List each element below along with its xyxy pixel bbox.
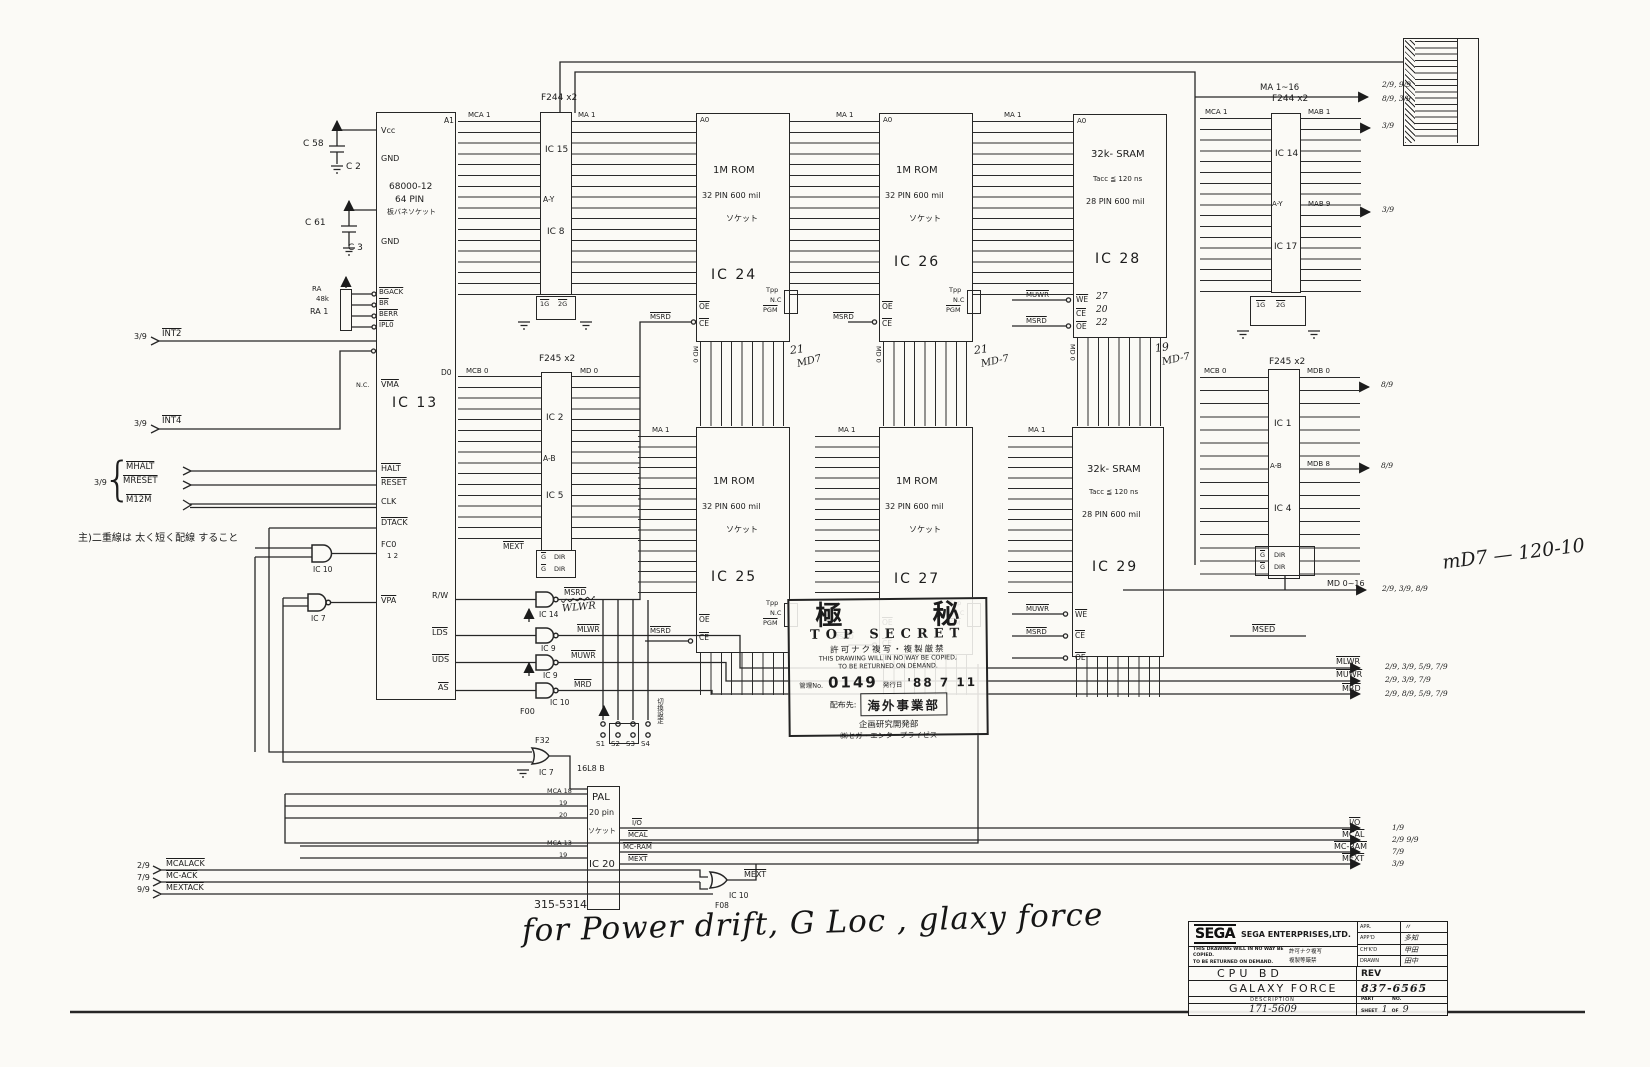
stamp-kanji-2: 秘 bbox=[932, 601, 959, 628]
connector-hatch bbox=[1405, 40, 1415, 143]
mrd-refs: 2/9, 8/9, 5/9, 7/9 bbox=[1385, 690, 1448, 698]
board-title: CPU BD bbox=[1189, 967, 1357, 980]
company-name: SEGA ENTERPRISES,LTD. bbox=[1241, 930, 1351, 939]
ic29-type: 32k- SRAM bbox=[1087, 465, 1141, 475]
signal-mcram: MC-RAM bbox=[1334, 843, 1367, 851]
gate-family-f00: F00 bbox=[520, 708, 535, 716]
signal-mrd: MRD bbox=[1342, 685, 1361, 693]
cpu-vcc1: Vcc bbox=[381, 127, 395, 135]
pgm-box-ic26 bbox=[967, 290, 981, 314]
appr-sign-1: 多知 bbox=[1401, 933, 1447, 943]
gate-ic9b: IC 9 bbox=[543, 672, 558, 680]
pal-in4: MCA 13 bbox=[547, 840, 572, 847]
signal-int2: INT2 bbox=[162, 330, 181, 339]
f245r-mode: A-B bbox=[1270, 463, 1282, 470]
pal-l3: ソケット bbox=[588, 828, 616, 835]
mab9-ref: 3/9 bbox=[1382, 206, 1394, 214]
description-value: 171-5609 bbox=[1189, 1004, 1357, 1015]
cpu-a1: A1 bbox=[444, 117, 454, 125]
f245l-g: G bbox=[541, 554, 546, 561]
stamp-top-secret: TOP SECRET bbox=[790, 626, 986, 643]
ic26-tpp: Tpp bbox=[949, 287, 961, 294]
bus-ma-ic29 bbox=[1008, 436, 1072, 595]
wiring-note-jp: 主)二重線は 太く短く配線 すること bbox=[78, 534, 238, 544]
int4-pageref: 3/9 bbox=[134, 420, 147, 428]
pal-in2: 19 bbox=[559, 800, 567, 807]
f245r-hdr-in: MCB 0 bbox=[1204, 368, 1226, 375]
ic25-nc: N.C bbox=[770, 610, 781, 617]
stamp-date-label: 発行日 bbox=[883, 679, 903, 689]
f244r-2g: 2G bbox=[1276, 302, 1285, 309]
ic26-type: 1M ROM bbox=[896, 166, 938, 176]
cpu-vma: VMA bbox=[381, 381, 399, 389]
ic26-nc: N.C bbox=[953, 297, 964, 304]
ic29-tacc: Tacc ≦ 120 ns bbox=[1089, 489, 1138, 496]
ic25-socket: ソケット bbox=[726, 526, 758, 534]
jumper-note: 切換設定 bbox=[656, 698, 663, 724]
ra-name: RA bbox=[312, 286, 321, 293]
ic29-oe: OE bbox=[1075, 654, 1086, 662]
and-gate-fc0 bbox=[312, 545, 332, 562]
ic26-name: IC 26 bbox=[894, 255, 940, 269]
pal-l1: PAL bbox=[592, 793, 610, 803]
f244r-hdr-out2: MAB 9 bbox=[1308, 201, 1330, 208]
cpu-rw: R/W bbox=[432, 592, 448, 600]
gate-out-muwr: MUWR bbox=[571, 652, 596, 660]
cap-label-c2: C 2 bbox=[346, 163, 361, 172]
product-name: GALAXY FORCE bbox=[1189, 981, 1357, 995]
f245l-ic-a: IC 2 bbox=[546, 414, 564, 423]
md0-vlabel-3: MD 0 bbox=[1069, 344, 1076, 361]
ic25-ce: CE bbox=[699, 634, 709, 642]
ic27-package: 32 PIN 600 mil bbox=[885, 503, 943, 511]
ic28-package: 28 PIN 600 mil bbox=[1086, 198, 1144, 206]
appr-label-3: DRAWN bbox=[1358, 956, 1401, 966]
ic25-msrd: MSRD bbox=[650, 628, 671, 635]
f245l-title: F245 x2 bbox=[539, 355, 575, 364]
signal-muwr: MUWR bbox=[1336, 671, 1362, 679]
f245r-hdr-out2: MDB 8 bbox=[1307, 461, 1330, 468]
ic24-socket: ソケット bbox=[726, 215, 758, 223]
f245r-dirb: DIR bbox=[1274, 564, 1285, 571]
sheet-total: 9 bbox=[1403, 1004, 1409, 1015]
ra-ref: RA 1 bbox=[310, 308, 328, 316]
f244l-ic-b: IC 8 bbox=[547, 228, 565, 237]
bus-ma-ic27 bbox=[815, 436, 879, 595]
gate-out-mlwr: MLWR bbox=[577, 626, 600, 634]
hand-21-b: 21 bbox=[973, 343, 988, 356]
mext-ref: 3/9 bbox=[1392, 860, 1404, 868]
pal-in5: 19 bbox=[559, 852, 567, 859]
f244l-1g: 1G bbox=[540, 301, 549, 308]
jumper-s2: S2 bbox=[611, 741, 620, 748]
cpu-pins: 64 PIN bbox=[395, 196, 424, 205]
signal-mextack: MEXTACK bbox=[166, 884, 204, 892]
gate-mext-ic: IC 10 bbox=[729, 892, 748, 900]
rev-label: REV bbox=[1357, 967, 1447, 980]
signal-msed: MSED bbox=[1252, 626, 1275, 634]
int2-pageref: 3/9 bbox=[134, 333, 147, 341]
jumper-s4: S4 bbox=[641, 741, 650, 748]
pal-in1: MCA 18 bbox=[547, 788, 572, 795]
ic29-name: IC 29 bbox=[1092, 560, 1138, 574]
appr-sign-3: 田中 bbox=[1401, 956, 1447, 966]
ic25-tpp: Tpp bbox=[766, 600, 778, 607]
signal-mcal: MCAL bbox=[1342, 831, 1364, 839]
appr-label-2: CH'K'D bbox=[1358, 945, 1401, 955]
stamp-no-label: 管理No. bbox=[799, 679, 823, 689]
stamp-dist-value: 海外事業部 bbox=[860, 692, 947, 716]
bus-cpu-to-f245 bbox=[458, 376, 541, 549]
part-label: PART bbox=[1361, 997, 1374, 1002]
md0-vlabel-2: MD 0 bbox=[875, 346, 882, 363]
f245l-hdr-in: MCB 0 bbox=[466, 368, 488, 375]
f245l-hdr-out: MD 0 bbox=[580, 368, 598, 375]
mcal-refs: 2/9 9/9 bbox=[1392, 836, 1419, 844]
mdb8-ref: 8/9 bbox=[1381, 462, 1393, 470]
f245r-hdr-out: MDB 0 bbox=[1307, 368, 1330, 375]
ic28-ce: CE bbox=[1076, 310, 1086, 318]
f244r-1g: 1G bbox=[1256, 302, 1265, 309]
ic24-type: 1M ROM bbox=[713, 166, 755, 176]
pal-out-mcram: MC-RAM bbox=[623, 844, 652, 851]
ic28-type: 32k- SRAM bbox=[1091, 150, 1145, 160]
f244l-mode: A-Y bbox=[543, 196, 554, 204]
signal-mlwr: MLWR bbox=[1336, 658, 1360, 666]
ic26-package: 32 PIN 600 mil bbox=[885, 192, 943, 200]
cpu-bgack: BGACK bbox=[379, 289, 403, 296]
ic27-socket: ソケット bbox=[909, 526, 941, 534]
cpu-halt: HALT bbox=[381, 465, 401, 473]
f244r-title: F244 x2 bbox=[1272, 95, 1308, 104]
io-ref: 1/9 bbox=[1392, 824, 1404, 832]
ic29-we: WE bbox=[1075, 611, 1087, 619]
schematic-sheet: C 58 C 2 C 61 C 3 RA 48k RA 1 3/9 INT2 3… bbox=[0, 0, 1650, 1067]
ic25-package: 32 PIN 600 mil bbox=[702, 503, 760, 511]
bus-ma-ic25 bbox=[638, 436, 696, 595]
ma-hdr-3: MA 1 bbox=[1004, 112, 1022, 119]
ack1-pageref: 2/9 bbox=[137, 862, 150, 870]
pgm-box-ic24 bbox=[784, 290, 798, 314]
appr-label-1: APP'D bbox=[1358, 933, 1401, 943]
ic26-pgm: PGM bbox=[946, 307, 961, 314]
f244r-ic-a: IC 14 bbox=[1275, 150, 1298, 159]
ic25-oe: OE bbox=[699, 616, 710, 624]
cpu-as: AS bbox=[438, 684, 449, 692]
nand-gate-msrd bbox=[536, 592, 558, 607]
edge-connector bbox=[1403, 38, 1479, 146]
f245r-ic-b: IC 4 bbox=[1274, 505, 1292, 514]
nand-gate-vpa bbox=[308, 594, 331, 611]
gate-fc-ic: IC 10 bbox=[313, 566, 332, 574]
ic28-tacc: Tacc ≦ 120 ns bbox=[1093, 176, 1142, 183]
ic25-pgm: PGM bbox=[763, 620, 778, 627]
f245l-ic-b: IC 5 bbox=[546, 492, 564, 501]
pal-name: IC 20 bbox=[589, 860, 615, 870]
cpu-gnd1: GND bbox=[381, 155, 399, 163]
f245l-dir: DIR bbox=[554, 554, 565, 561]
approval-grid: APR. 〃 APP'D 多知 CH'K'D 甲田 DRAWN 田中 bbox=[1358, 922, 1447, 966]
ic28-oe: OE bbox=[1076, 323, 1087, 331]
stamp-date: '88 7 11 bbox=[907, 675, 977, 690]
signal-io: I/O bbox=[1349, 819, 1360, 827]
ic24-ce: CE bbox=[699, 320, 709, 328]
bus-ma-2 bbox=[790, 121, 879, 295]
ra-value: 48k bbox=[316, 296, 329, 303]
md0-vlabel-1: MD 0 bbox=[692, 346, 699, 363]
pal-out-mext: MEXT bbox=[628, 856, 647, 863]
gate-f32-ic: IC 7 bbox=[539, 769, 554, 777]
ic24-name: IC 24 bbox=[711, 268, 757, 282]
stamp-kanji-1: 極 bbox=[815, 602, 842, 629]
f244r-mode: A-Y bbox=[1272, 201, 1283, 208]
connector-divider bbox=[1457, 39, 1458, 143]
f244l-hdr-out: MA 1 bbox=[578, 112, 596, 119]
chip-ic20-pal bbox=[587, 786, 620, 910]
f245r-title: F245 x2 bbox=[1269, 358, 1305, 367]
sheet-label: SHEET bbox=[1361, 1009, 1378, 1014]
ack3-pageref: 9/9 bbox=[137, 886, 150, 894]
ic28-msrd: MSRD bbox=[1026, 318, 1047, 325]
description-label: DESCRIPTION bbox=[1189, 997, 1357, 1003]
ic29-muwr: MUWR bbox=[1026, 606, 1049, 613]
appr-label-0: APR. bbox=[1358, 922, 1401, 932]
ic24-nc: N.C bbox=[770, 297, 781, 304]
f244l-title: F244 x2 bbox=[541, 94, 577, 103]
pal-l2: 20 pin bbox=[589, 809, 614, 817]
jumper-s1: S1 bbox=[596, 741, 605, 748]
hand-19-c: 19 bbox=[1154, 341, 1169, 354]
ic28-hand-we: 27 bbox=[1096, 293, 1107, 302]
signal-m12m: M12M bbox=[126, 496, 151, 505]
bus-cpu-to-f244 bbox=[458, 121, 540, 295]
pal-part-number: 315-5314 bbox=[534, 899, 587, 910]
ic24-tpp: Tpp bbox=[766, 287, 778, 294]
f244r-hdr-out: MAB 1 bbox=[1308, 109, 1330, 116]
f245r-ic-a: IC 1 bbox=[1274, 420, 1292, 429]
tb-disclaimer-2: TO BE RETURNED ON DEMAND. bbox=[1193, 960, 1289, 966]
nand-gate-muwr bbox=[536, 655, 558, 670]
board-number: 837-6565 bbox=[1357, 981, 1447, 995]
cpu-lds: LDS bbox=[432, 629, 448, 637]
ic26-a0: A0 bbox=[883, 117, 892, 124]
gate-family-f32: F32 bbox=[535, 737, 550, 745]
f244r-hdr-in: MCA 1 bbox=[1205, 109, 1227, 116]
bus-ma-3 bbox=[973, 121, 1073, 295]
ic24-a0: A0 bbox=[700, 117, 709, 124]
ack2-pageref: 7/9 bbox=[137, 874, 150, 882]
nand-gate-mlwr bbox=[536, 628, 558, 643]
connector-pins bbox=[1415, 41, 1457, 142]
ic26-oe: OE bbox=[882, 303, 893, 311]
bus-d-ic29 bbox=[1076, 657, 1166, 697]
ma-refs-2: 8/9, 3/9 bbox=[1382, 95, 1411, 103]
resistor-array-body bbox=[340, 289, 352, 331]
jumper-s3: S3 bbox=[626, 741, 635, 748]
signal-md-bus: MD 0~16 bbox=[1327, 580, 1365, 588]
or-gate-mext bbox=[710, 872, 727, 888]
top-secret-stamp: 極 秘 TOP SECRET 許可ナク複写・複製厳禁 THIS DRAWING … bbox=[787, 597, 988, 737]
bus-d-ic28 bbox=[1077, 338, 1167, 426]
signal-ma-bus: MA 1~16 bbox=[1260, 84, 1299, 93]
gate-ic14: IC 14 bbox=[539, 611, 558, 619]
gate-out-mrd: MRD bbox=[574, 681, 591, 689]
cpu-reset: RESET bbox=[381, 479, 407, 487]
pal-out-mcal: MCAL bbox=[628, 832, 648, 839]
pal-out-io: I/O bbox=[632, 820, 642, 827]
bus-d-ic25 bbox=[700, 653, 790, 695]
cpu-d0: D0 bbox=[441, 369, 452, 377]
ic25-name: IC 25 bbox=[711, 570, 757, 584]
chip-ic29-sram bbox=[1072, 427, 1164, 657]
ic24-pgm: PGM bbox=[763, 307, 778, 314]
signal-mreset: MRESET bbox=[123, 477, 158, 486]
gate-ic9a: IC 9 bbox=[541, 645, 556, 653]
capacitor-symbols bbox=[329, 130, 345, 173]
tb-disclaimer-jp1: 許可ナク複写 bbox=[1289, 948, 1322, 956]
chip-ic28-sram bbox=[1073, 114, 1167, 338]
cpu-dtack: DTACK bbox=[381, 519, 408, 527]
appr-sign-2: 甲田 bbox=[1401, 945, 1447, 955]
ic24-msrd: MSRD bbox=[650, 314, 671, 321]
pal-family: 16L8 B bbox=[577, 765, 605, 773]
f245l-dir2: DIR bbox=[554, 566, 565, 573]
cpu-berr: BERR bbox=[379, 311, 398, 318]
cap-label-c3: C 3 bbox=[348, 244, 363, 253]
ic29-msrd: MSRD bbox=[1026, 629, 1047, 636]
cpu-vpa: VPA bbox=[381, 597, 396, 605]
f245r-gb: G bbox=[1260, 564, 1265, 571]
gate-out-msrd: MSRD bbox=[564, 589, 586, 597]
signal-mcack: MC-ACK bbox=[166, 872, 197, 880]
ic26-socket: ソケット bbox=[909, 215, 941, 223]
signal-mext-out: MEXT bbox=[1342, 855, 1364, 863]
gate-out-mext: MEXT bbox=[744, 871, 766, 879]
of-label: OF bbox=[1392, 1009, 1399, 1014]
ic26-msrd: MSRD bbox=[833, 314, 854, 321]
cpu-socket: 板バネソケット bbox=[387, 209, 436, 216]
cap-label-c61: C 61 bbox=[305, 219, 326, 228]
stamp-dist-label: 配布先: bbox=[830, 699, 857, 710]
cpu-fc-nums: 1 2 bbox=[387, 553, 398, 560]
cpu-nc: N.C. bbox=[356, 382, 370, 389]
hand-21-a: 21 bbox=[789, 343, 804, 356]
cpu-uds: UDS bbox=[432, 656, 449, 664]
f245l-mext: MEXT bbox=[503, 543, 524, 551]
signal-mhalt: MHALT bbox=[126, 463, 154, 472]
nand-gate-mrd bbox=[536, 683, 558, 698]
bus-ma-1 bbox=[572, 121, 696, 295]
title-block: SEGA SEGA ENTERPRISES,LTD. THIS DRAWING … bbox=[1188, 921, 1448, 1016]
ic29-package: 28 PIN 600 mil bbox=[1082, 511, 1140, 519]
cap-label-c58: C 58 bbox=[303, 140, 324, 149]
f244r-ic-b: IC 17 bbox=[1274, 243, 1297, 252]
ma-hdr-4: MA 1 bbox=[652, 427, 670, 434]
signal-mcalack: MCALACK bbox=[166, 860, 205, 868]
or-gate-f32 bbox=[532, 748, 549, 764]
ic28-hand-oe: 22 bbox=[1096, 319, 1107, 328]
md-refs: 2/9, 3/9, 8/9 bbox=[1382, 585, 1428, 593]
ma-hdr-2: MA 1 bbox=[836, 112, 854, 119]
ic29-ce: CE bbox=[1075, 632, 1085, 640]
gate-vpa-ic: IC 7 bbox=[311, 615, 326, 623]
cpu-part: 68000-12 bbox=[389, 183, 432, 192]
mcram-ref: 7/9 bbox=[1392, 848, 1404, 856]
signal-int4: INT4 bbox=[162, 417, 181, 426]
mlwr-refs: 2/9, 3/9, 5/9, 7/9 bbox=[1385, 663, 1448, 671]
stamp-number: 0149 bbox=[828, 673, 878, 692]
sega-logo: SEGA bbox=[1194, 924, 1236, 944]
cpu-clk: CLK bbox=[381, 498, 396, 506]
ma-refs-1: 2/9, 9/9 bbox=[1382, 81, 1411, 89]
ic28-muwr: MUWR bbox=[1026, 292, 1049, 299]
appr-sign-0: 〃 bbox=[1401, 922, 1447, 932]
mab1-ref: 3/9 bbox=[1382, 122, 1394, 130]
pal-in3: 20 bbox=[559, 812, 567, 819]
f245l-mode: A-B bbox=[543, 455, 556, 463]
tb-disclaimer-jp2: 複製等厳禁 bbox=[1289, 957, 1322, 965]
muwr-refs: 2/9, 3/9, 7/9 bbox=[1385, 676, 1431, 684]
f244l-ic-a: IC 15 bbox=[545, 146, 568, 155]
no-label: NO. bbox=[1392, 997, 1401, 1002]
mdb0-ref: 8/9 bbox=[1381, 381, 1393, 389]
ic25-type: 1M ROM bbox=[713, 477, 755, 487]
ic27-name: IC 27 bbox=[894, 572, 940, 586]
tb-disclaimer-1: THIS DRAWING WILL IN NO WAY BE COPIED. bbox=[1193, 947, 1289, 960]
f245l-g2: G bbox=[541, 566, 546, 573]
f244l-hdr-in: MCA 1 bbox=[468, 112, 490, 119]
gate-ic10b: IC 10 bbox=[550, 699, 569, 707]
cpu-br: BR bbox=[379, 300, 389, 307]
bus-d-ic24 bbox=[700, 342, 790, 426]
f245r-dir: DIR bbox=[1274, 552, 1285, 559]
sheet-no: 1 bbox=[1382, 1004, 1388, 1015]
ic28-name: IC 28 bbox=[1095, 252, 1141, 266]
ma-hdr-6: MA 1 bbox=[1028, 427, 1046, 434]
cpu-ipl: IPL0 bbox=[379, 322, 394, 329]
stamp-dept-2: ㈱セガ・エンタープライゼス bbox=[791, 729, 987, 742]
cpu-gnd2: GND bbox=[381, 238, 399, 246]
ic26-ce: CE bbox=[882, 320, 892, 328]
cpu-name: IC 13 bbox=[392, 396, 438, 410]
ic24-package: 32 PIN 600 mil bbox=[702, 192, 760, 200]
f245r-g: G bbox=[1260, 552, 1265, 559]
ma-hdr-5: MA 1 bbox=[838, 427, 856, 434]
ic27-type: 1M ROM bbox=[896, 477, 938, 487]
ic28-a0: A0 bbox=[1077, 118, 1086, 125]
f244l-2g: 2G bbox=[558, 301, 567, 308]
ic24-oe: OE bbox=[699, 303, 710, 311]
ic28-hand-ce: 20 bbox=[1096, 306, 1107, 315]
bus-md bbox=[572, 376, 640, 549]
bus-d-ic26 bbox=[883, 342, 973, 426]
cpu-fc: FC0 bbox=[381, 541, 396, 549]
bus-mca-right bbox=[1200, 118, 1271, 292]
ic28-we: WE bbox=[1076, 296, 1088, 304]
